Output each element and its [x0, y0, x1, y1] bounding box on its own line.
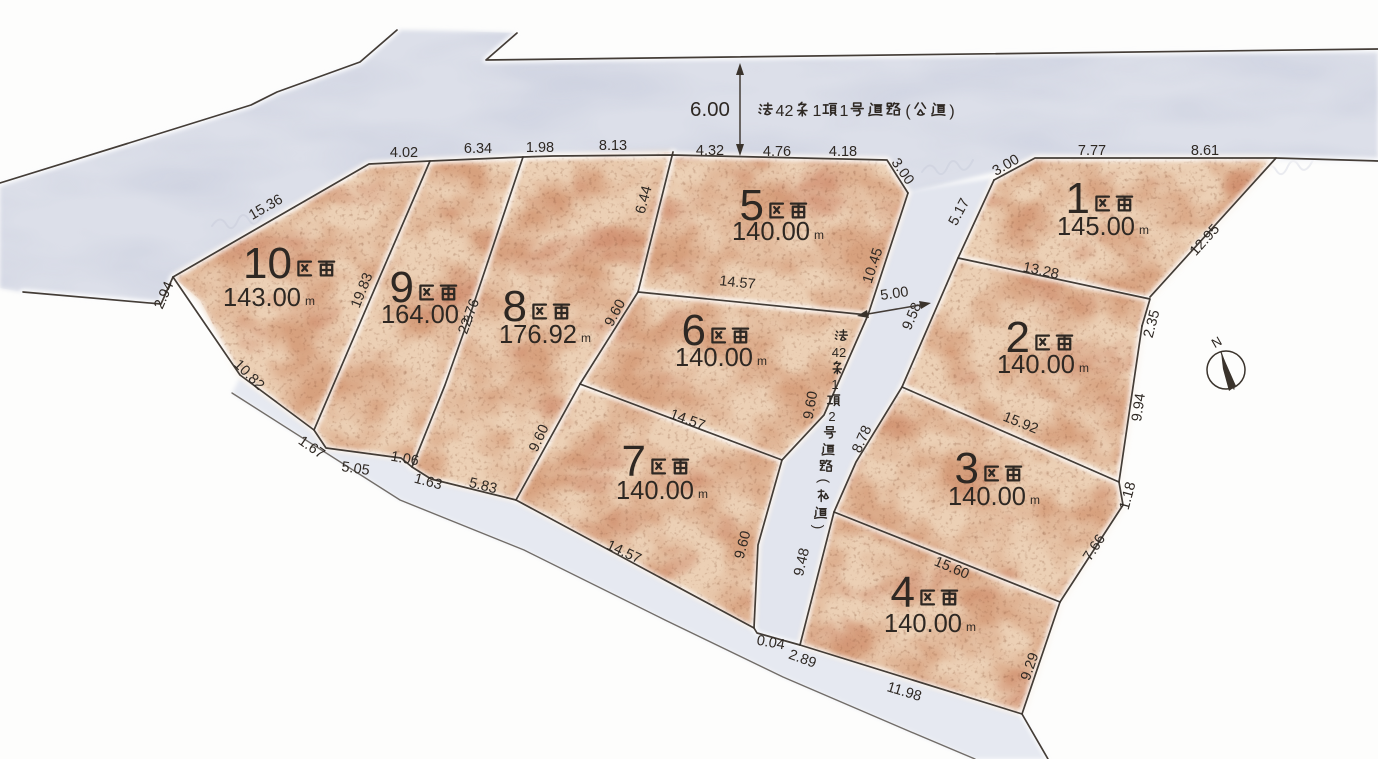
svg-text:): ) [949, 103, 954, 120]
svg-text:2: 2 [828, 409, 835, 424]
svg-text:164.00: 164.00 [381, 301, 459, 329]
svg-text:4: 4 [776, 103, 785, 120]
svg-text:m: m [581, 331, 591, 345]
svg-text:m: m [757, 354, 767, 368]
svg-text:140.00: 140.00 [948, 483, 1026, 511]
svg-text:1: 1 [813, 103, 822, 120]
svg-text:143.00: 143.00 [223, 284, 301, 312]
svg-text:8.61: 8.61 [1191, 143, 1219, 159]
svg-text:42: 42 [832, 345, 846, 360]
svg-text:m: m [1030, 493, 1040, 507]
svg-text:7.77: 7.77 [1078, 143, 1106, 159]
svg-text:140.00: 140.00 [675, 344, 753, 372]
svg-text:145.00: 145.00 [1057, 213, 1135, 241]
svg-text:4.32: 4.32 [696, 143, 724, 159]
svg-text:(: ( [905, 103, 911, 120]
svg-text:4.02: 4.02 [390, 145, 418, 161]
svg-text:1.98: 1.98 [526, 140, 554, 156]
svg-text:1: 1 [831, 377, 838, 392]
svg-text:2: 2 [785, 103, 794, 120]
svg-text:m: m [814, 228, 824, 242]
svg-text:4.76: 4.76 [763, 144, 791, 160]
svg-text:m: m [1139, 223, 1149, 237]
svg-text:140.00: 140.00 [997, 351, 1075, 379]
svg-text:176.92: 176.92 [499, 321, 577, 349]
svg-text:140.00: 140.00 [616, 477, 694, 505]
svg-text:m: m [1079, 361, 1089, 375]
svg-text:m: m [305, 294, 315, 308]
svg-text:m: m [698, 487, 708, 501]
svg-text:m: m [966, 620, 976, 634]
svg-text:m: m [463, 311, 473, 325]
svg-text:4.18: 4.18 [829, 144, 857, 160]
svg-text:(: ( [817, 479, 833, 484]
svg-text:): ) [811, 525, 827, 530]
svg-text:6.00: 6.00 [690, 98, 730, 121]
svg-text:140.00: 140.00 [732, 218, 810, 246]
svg-text:1: 1 [840, 103, 849, 120]
svg-text:6.34: 6.34 [464, 141, 492, 157]
svg-text:8.13: 8.13 [599, 138, 627, 154]
svg-text:10: 10 [243, 239, 292, 288]
svg-text:140.00: 140.00 [884, 610, 962, 638]
